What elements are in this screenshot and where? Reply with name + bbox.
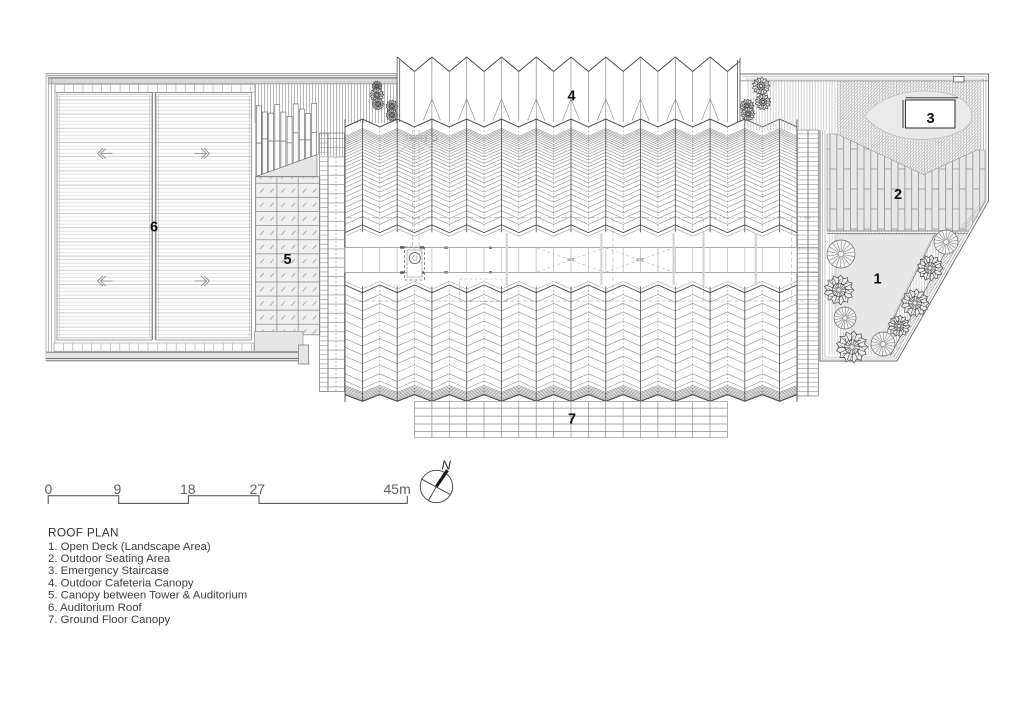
svg-text:1: 1 [873, 272, 881, 288]
svg-text:3: 3 [926, 111, 934, 127]
svg-text:0: 0 [45, 481, 53, 497]
svg-text:4. Outdoor Cafeteria Canopy: 4. Outdoor Cafeteria Canopy [48, 577, 194, 589]
svg-text:3. Emergency Staircase: 3. Emergency Staircase [48, 565, 169, 577]
svg-text:9: 9 [114, 481, 122, 497]
svg-text:6: 6 [150, 220, 158, 236]
svg-text:27: 27 [250, 481, 266, 497]
svg-text:4: 4 [567, 89, 575, 105]
svg-text:N: N [442, 458, 452, 473]
svg-text:2: 2 [894, 187, 902, 203]
svg-text:5: 5 [283, 252, 291, 268]
svg-text:2. Outdoor Seating Area: 2. Outdoor Seating Area [48, 553, 171, 565]
svg-text:1. Open Deck (Landscape Area): 1. Open Deck (Landscape Area) [48, 541, 211, 553]
svg-text:7. Ground Floor Canopy: 7. Ground Floor Canopy [48, 614, 171, 626]
svg-text:18: 18 [180, 481, 196, 497]
svg-text:100: 100 [567, 257, 575, 262]
svg-text:100: 100 [636, 257, 644, 262]
svg-text:45m: 45m [384, 481, 411, 497]
svg-text:ROOF PLAN: ROOF PLAN [48, 525, 119, 539]
svg-text:7: 7 [568, 412, 576, 428]
svg-text:6. Auditorium Roof: 6. Auditorium Roof [48, 602, 143, 614]
svg-text:5. Canopy between Tower & Audi: 5. Canopy between Tower & Auditorium [48, 590, 247, 602]
